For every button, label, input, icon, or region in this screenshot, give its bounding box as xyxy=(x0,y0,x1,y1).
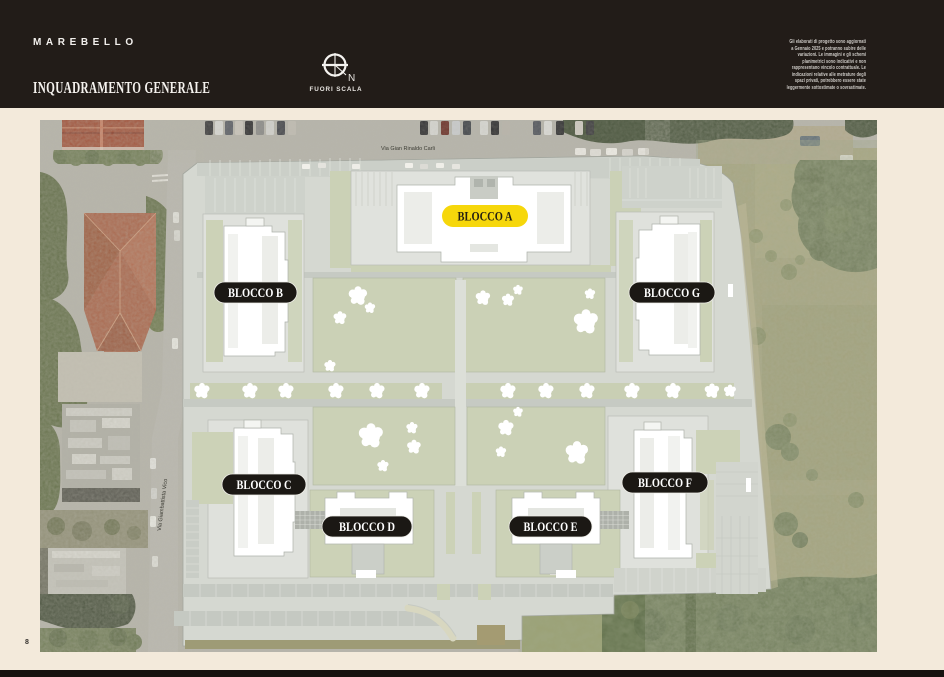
svg-text:BLOCCO G: BLOCCO G xyxy=(644,285,700,300)
svg-text:BLOCCO D: BLOCCO D xyxy=(339,519,395,534)
svg-text:BLOCCO F: BLOCCO F xyxy=(638,475,692,490)
svg-text:BLOCCO A: BLOCCO A xyxy=(458,209,513,224)
svg-text:BLOCCO E: BLOCCO E xyxy=(524,519,578,534)
svg-text:N: N xyxy=(348,73,355,84)
svg-text:Via Gian Rinaldo Carli: Via Gian Rinaldo Carli xyxy=(381,146,435,152)
svg-text:BLOCCO C: BLOCCO C xyxy=(237,477,292,492)
svg-text:BLOCCO B: BLOCCO B xyxy=(228,285,283,300)
